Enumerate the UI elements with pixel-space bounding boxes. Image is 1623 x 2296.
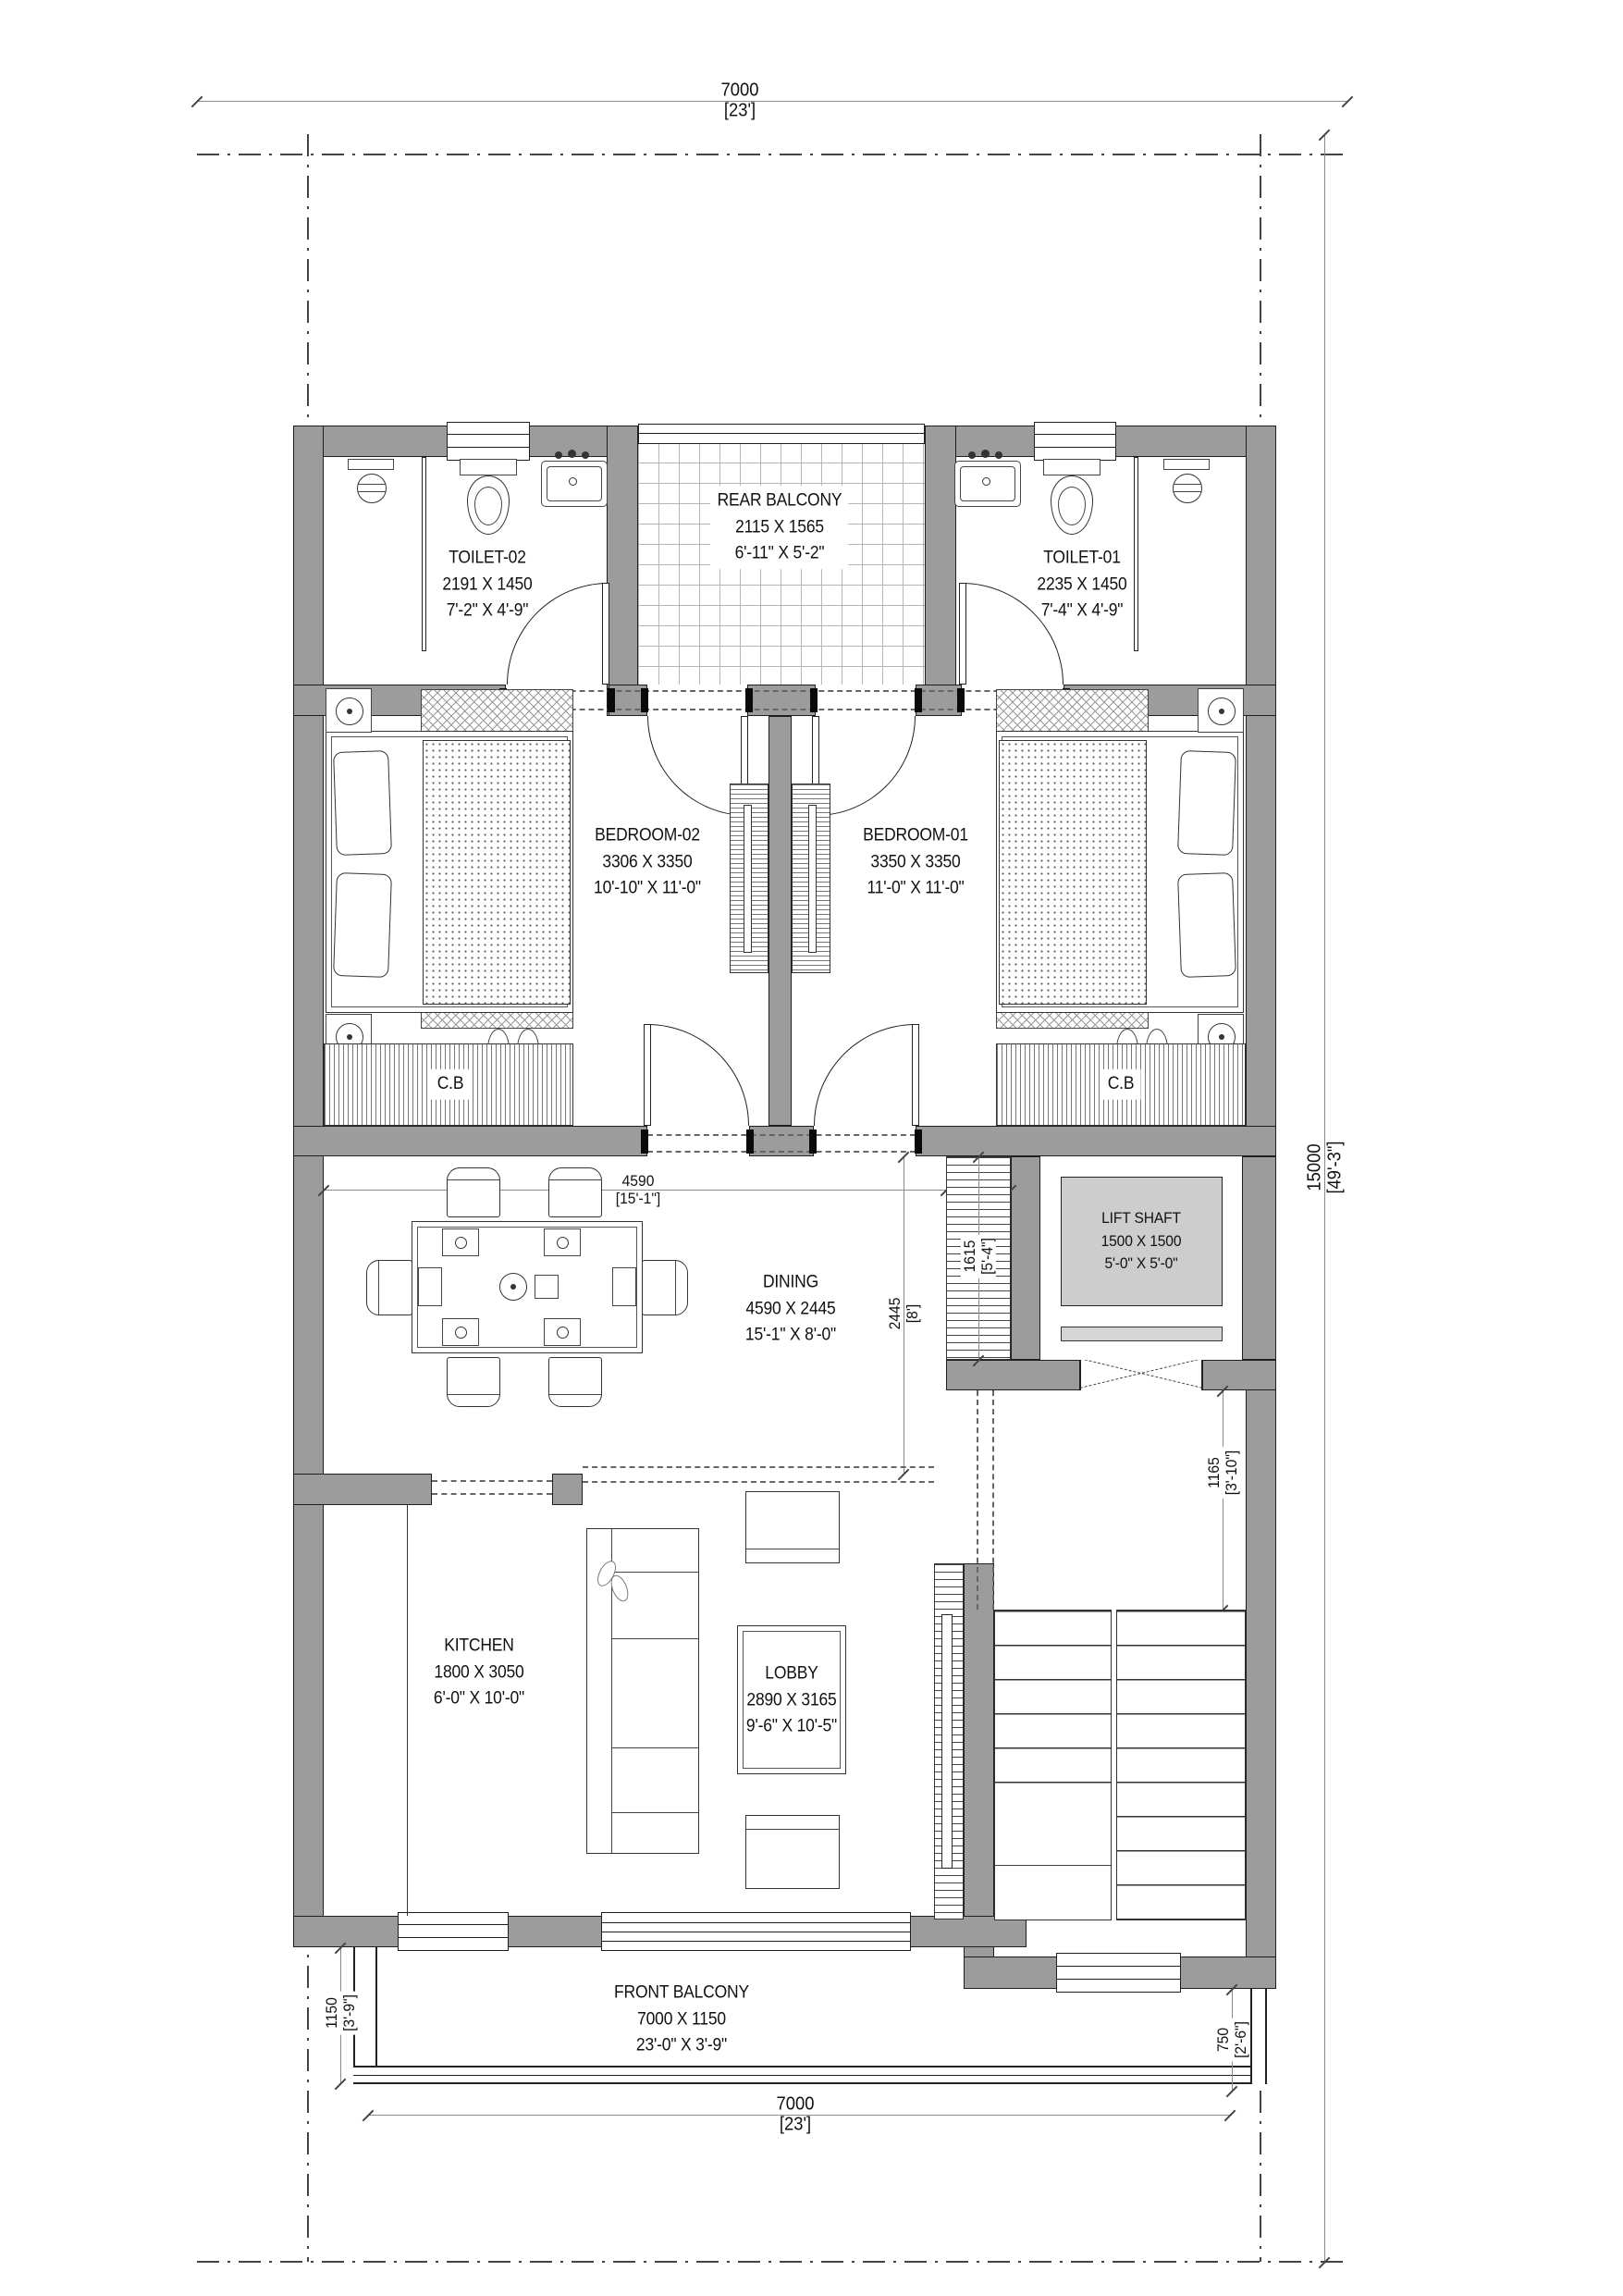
window <box>447 422 530 461</box>
plot-boundary-top <box>197 154 1347 155</box>
dim-dining-depth: 2445[8'] <box>886 1298 921 1330</box>
tick <box>1224 2110 1236 2122</box>
door-leaf <box>602 583 609 685</box>
wardrobe <box>730 784 768 973</box>
dim-right: 15000[49'-3"] <box>1305 1141 1346 1193</box>
toilet-tank-icon <box>460 459 517 475</box>
faucet-icon <box>555 451 562 459</box>
beam-line <box>583 1481 934 1483</box>
dining-chair <box>447 1357 500 1407</box>
dimension-line-right <box>1324 134 1325 2262</box>
place-setting <box>544 1318 581 1346</box>
faucet-icon <box>582 451 589 459</box>
dim-bottom: 7000[23'] <box>777 2094 815 2136</box>
wall-segment <box>607 426 638 716</box>
drain-icon <box>982 477 990 486</box>
door-leaf <box>644 1024 651 1126</box>
place-setting <box>418 1267 442 1306</box>
place-setting <box>442 1228 479 1256</box>
dim-stair-landing: 750[2'-6"] <box>1214 2018 1249 2061</box>
dim-stair-length: 1615[5'-4"] <box>961 1234 996 1278</box>
faucet-icon <box>995 451 1002 459</box>
window <box>1034 422 1116 461</box>
faucet-icon <box>968 451 976 459</box>
door-jamb <box>810 688 818 712</box>
door-jamb <box>957 688 965 712</box>
tick <box>363 2110 375 2122</box>
threshold-line <box>432 1480 552 1482</box>
wall-segment <box>293 1126 647 1156</box>
wall-segment <box>293 1474 432 1505</box>
door-leaf <box>959 583 966 685</box>
door-swing <box>814 1024 916 1126</box>
toilet01-label: TOILET-012235 X 14507'-4" X 4'-9" <box>1037 545 1126 624</box>
dimension-line <box>1223 1390 1223 1610</box>
door-jamb <box>745 688 753 712</box>
bedside-table <box>326 688 372 733</box>
lift-counterweight <box>1061 1327 1223 1341</box>
pillow <box>1177 750 1236 856</box>
shower-icon <box>348 459 394 470</box>
door-jamb <box>641 1129 648 1154</box>
bed-mattress <box>999 740 1147 1005</box>
wall-segment <box>552 1474 583 1505</box>
dim-lift-lobby: 1165[3'-10"] <box>1205 1447 1240 1499</box>
wall-segment <box>925 426 956 716</box>
door-jamb <box>608 688 615 712</box>
wall-segment <box>293 426 324 1947</box>
tick <box>191 96 203 108</box>
table-decor <box>499 1273 527 1301</box>
bedside-table <box>1198 688 1244 733</box>
bedroom01-label: BEDROOM-013350 X 335011'-0" X 11'-0" <box>863 822 968 902</box>
dimension-line-top <box>197 101 1347 102</box>
wall-segment <box>1202 1360 1276 1390</box>
door-jamb <box>746 1129 754 1154</box>
cupboard-label: C.B <box>430 1069 470 1100</box>
threshold-line <box>647 1134 916 1136</box>
dining-chair <box>642 1260 688 1315</box>
cupboard-label: C.B <box>1100 1069 1140 1100</box>
threshold-line <box>506 690 1064 692</box>
bedroom02-label: BEDROOM-023306 X 335010'-10" X 11'-0" <box>594 822 701 902</box>
lobby-label: LOBBY2890 X 31659'-6" X 10'-5" <box>746 1660 837 1740</box>
pillow <box>333 750 392 856</box>
rear-balcony-label: REAR BALCONY2115 X 15656'-11" X 5'-2" <box>710 486 848 569</box>
toilet-tank-icon <box>1043 459 1100 475</box>
front-balcony-label: FRONT BALCONY7000 X 115023'-0" X 3'-9" <box>614 1980 749 2059</box>
beam-line <box>583 1466 934 1468</box>
door-jamb <box>641 688 648 712</box>
door-jamb <box>915 1129 922 1154</box>
threshold-line <box>647 1151 916 1153</box>
rear-balcony-railing <box>638 424 925 444</box>
threshold-line <box>432 1493 552 1495</box>
dining-label: DINING4590 X 244515'-1" X 8'-0" <box>745 1269 836 1349</box>
wardrobe <box>792 784 830 973</box>
shower-partition <box>1134 457 1138 651</box>
pillow <box>333 872 392 978</box>
bed-mattress <box>423 740 571 1005</box>
shower-head-icon <box>1173 474 1202 503</box>
beam-line <box>977 1390 978 1610</box>
shower-icon <box>1163 459 1210 470</box>
door-swing <box>647 1024 749 1126</box>
shower-head-icon <box>357 474 387 503</box>
wall-segment <box>916 1126 1276 1156</box>
door-jamb <box>809 1129 817 1154</box>
plot-boundary-bottom <box>197 2261 1347 2263</box>
dimension-line <box>324 1190 1011 1191</box>
wall-segment <box>768 716 792 1126</box>
balcony-railing <box>353 2066 1267 2084</box>
dining-chair <box>447 1167 500 1217</box>
door-leaf <box>912 1024 919 1126</box>
stair-landing <box>995 1811 1111 1920</box>
dim-front-balcony-depth: 1150[3'-9"] <box>323 1991 358 2034</box>
bed-carpet <box>421 689 573 734</box>
dining-chair <box>366 1260 412 1315</box>
dim-dining-width: 4590[15'-1"] <box>616 1172 661 1207</box>
dining-chair <box>548 1167 602 1217</box>
floor-plan: 7000[23'] 15000[49'-3"] 7000[23'] <box>0 0 1623 2296</box>
dim-top: 7000[23'] <box>721 80 759 122</box>
table-decor <box>535 1275 559 1299</box>
place-setting <box>544 1228 581 1256</box>
place-setting <box>612 1267 636 1306</box>
stair-divider <box>1111 1610 1117 1920</box>
dining-chair <box>548 1357 602 1407</box>
wall-segment <box>946 1360 1080 1390</box>
door-jamb <box>915 688 922 712</box>
lounge-chair <box>745 1491 840 1563</box>
kitchen-label: KITCHEN1800 X 30506'-0" X 10'-0" <box>434 1633 524 1712</box>
toilet02-label: TOILET-022191 X 14507'-2" X 4'-9" <box>442 545 532 624</box>
lift-door <box>1080 1360 1202 1390</box>
door-swing <box>816 716 916 816</box>
bed-carpet <box>996 689 1149 734</box>
wall-segment <box>1242 1156 1276 1360</box>
place-setting <box>442 1318 479 1346</box>
threshold-line <box>506 709 1064 710</box>
sliding-door <box>601 1912 911 1951</box>
faucet-icon <box>568 450 576 458</box>
faucet-icon <box>981 450 990 458</box>
lift-label: LIFT SHAFT1500 X 15005'-0" X 5'-0" <box>1101 1207 1182 1276</box>
pillow <box>1177 872 1236 978</box>
lounge-chair <box>745 1815 840 1889</box>
drain-icon <box>569 477 577 486</box>
beam-line <box>992 1390 994 1610</box>
kitchen-counter-edge <box>407 1505 408 1916</box>
balcony-railing <box>1250 1989 1267 2084</box>
tick <box>1342 96 1354 108</box>
stair-handrail <box>941 1614 953 1869</box>
window <box>398 1912 509 1951</box>
window <box>1056 1953 1181 1993</box>
shower-partition <box>422 457 426 651</box>
